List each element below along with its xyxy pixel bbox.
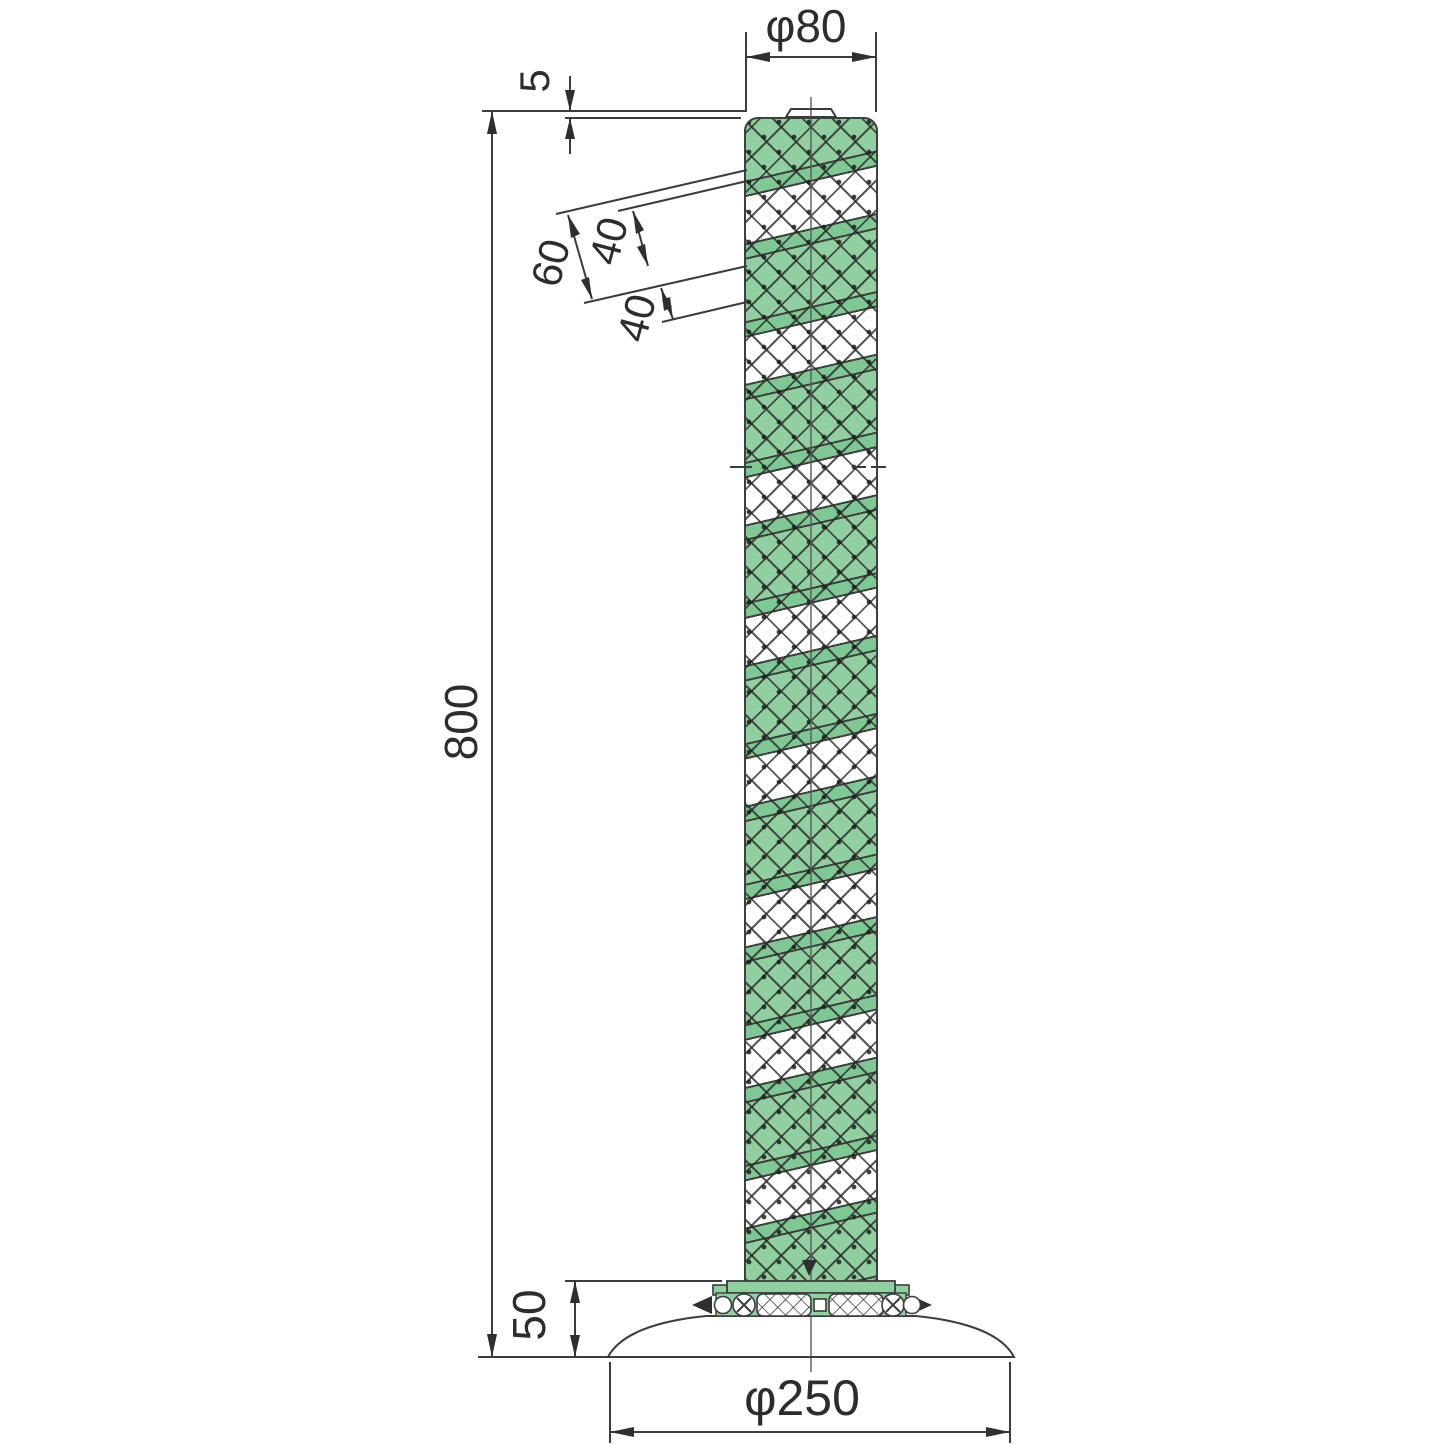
dim-800 [487, 111, 497, 1357]
post-body [744, 117, 878, 1283]
drawing-canvas: φ80 5 60 40 40 800 50 φ250 [0, 0, 1445, 1445]
dim-60-label: 60 [525, 235, 578, 291]
dim-40-upper-label: 40 [583, 213, 636, 269]
base-collar [713, 1281, 909, 1316]
dim-50-label: 50 [506, 1289, 552, 1340]
dim-50 [565, 1281, 722, 1357]
dim-800-label: 800 [438, 684, 484, 761]
collar-ring-ornaments [692, 1294, 932, 1316]
post-cap [786, 109, 836, 117]
dim-cap-5-label: 5 [514, 69, 556, 92]
dim-phi250-label: φ250 [744, 1373, 860, 1423]
dim-phi80-label: φ80 [766, 3, 847, 49]
base-dome [608, 1316, 1014, 1357]
dim-40-lower-label: 40 [611, 290, 664, 346]
dimension-linework [0, 0, 1445, 1445]
